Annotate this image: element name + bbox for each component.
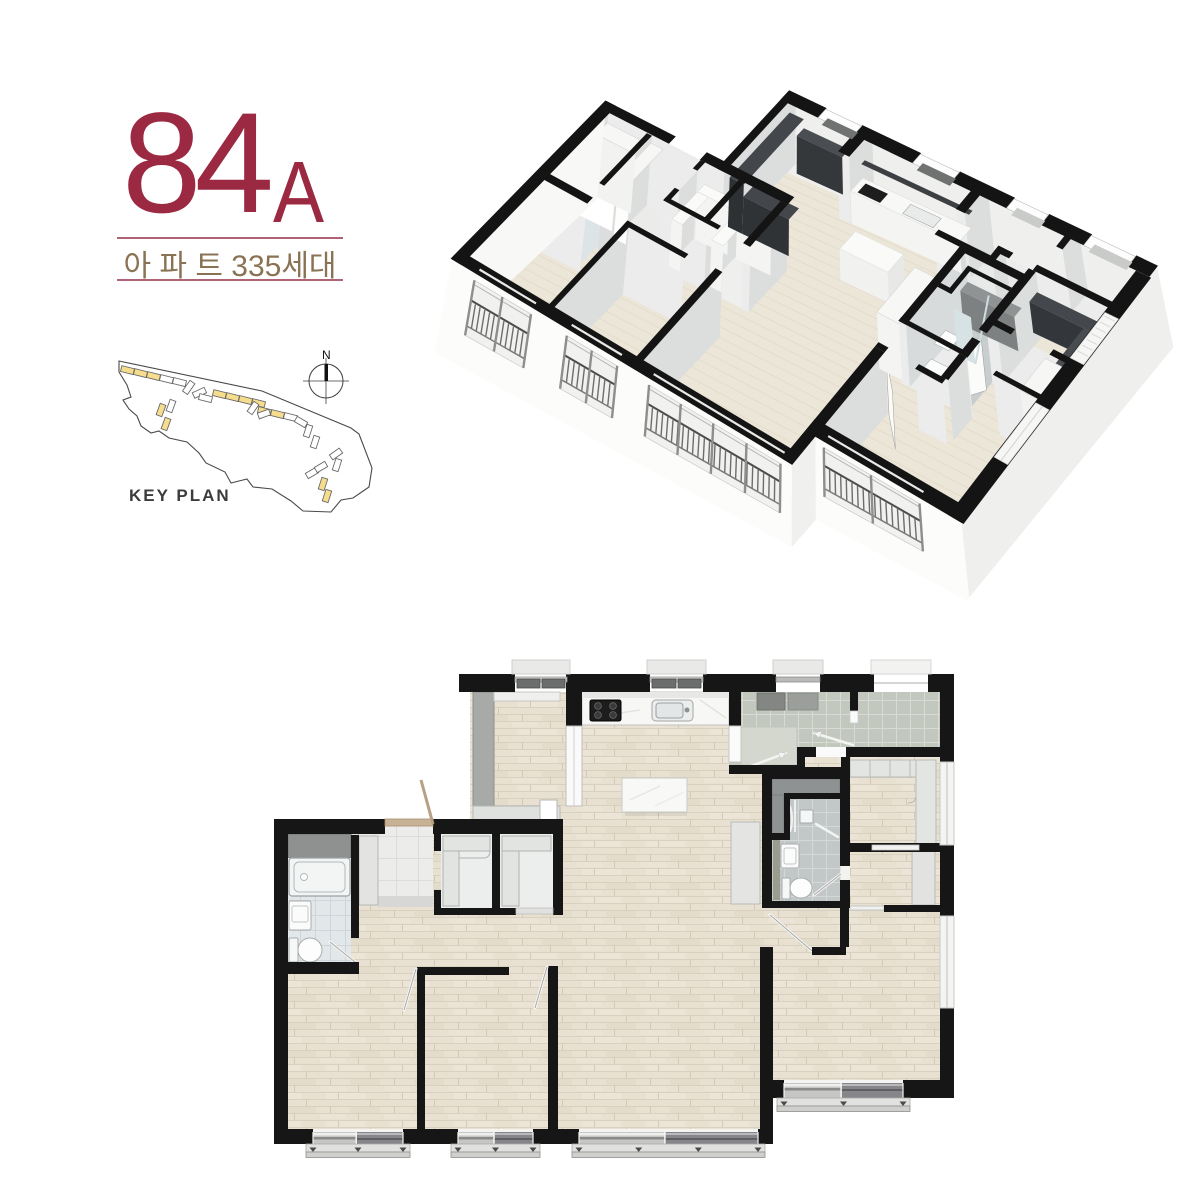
svg-text:N: N bbox=[322, 348, 331, 362]
svg-text:KEY PLAN: KEY PLAN bbox=[129, 486, 231, 505]
